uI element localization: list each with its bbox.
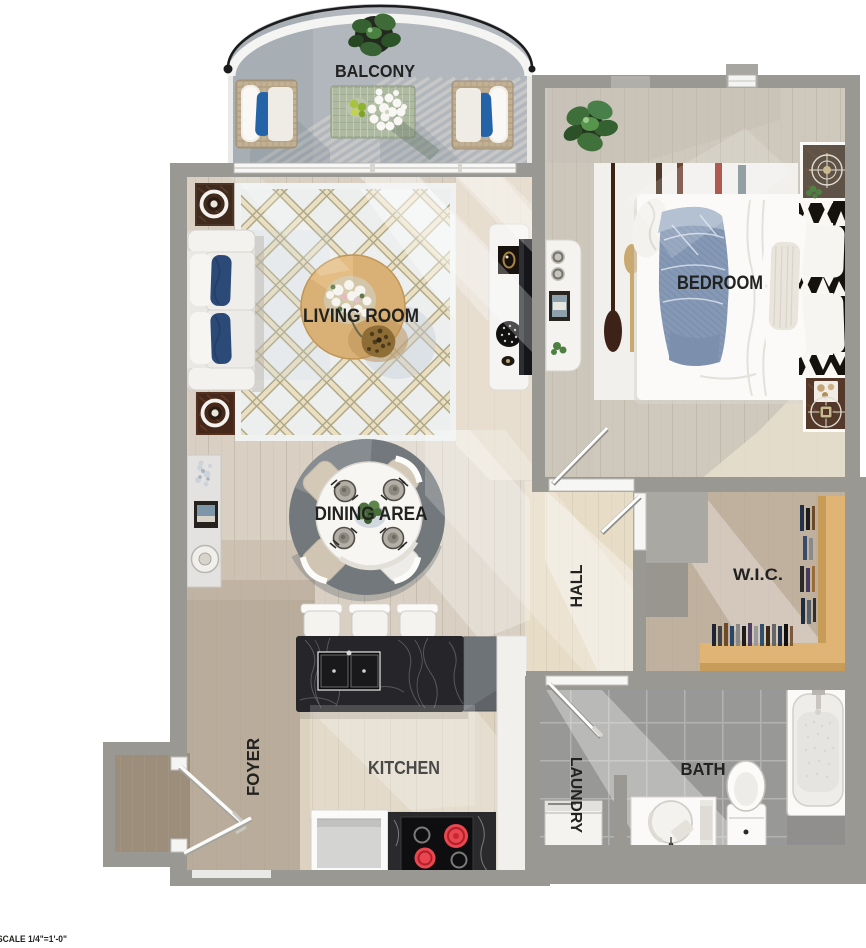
svg-text:BATH: BATH bbox=[681, 759, 726, 779]
svg-text:LIVING ROOM: LIVING ROOM bbox=[303, 306, 419, 327]
svg-text:FOYER: FOYER bbox=[243, 738, 263, 796]
svg-text:LAUNDRY: LAUNDRY bbox=[567, 757, 584, 834]
svg-text:SCALE 1/4"=1'-0": SCALE 1/4"=1'-0" bbox=[0, 934, 67, 943]
svg-text:BALCONY: BALCONY bbox=[335, 61, 415, 81]
svg-text:BEDROOM: BEDROOM bbox=[677, 273, 763, 294]
svg-text:W.I.C.: W.I.C. bbox=[733, 565, 783, 584]
svg-text:HALL: HALL bbox=[567, 565, 586, 608]
svg-text:DINING AREA: DINING AREA bbox=[315, 504, 428, 525]
